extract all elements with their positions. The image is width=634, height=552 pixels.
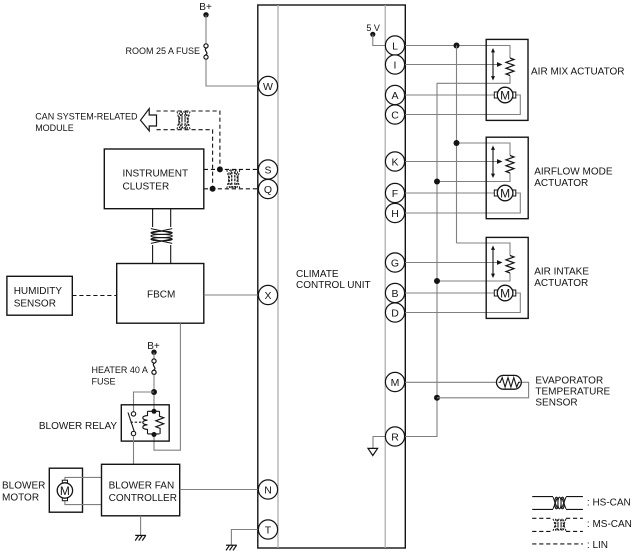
svg-text:FBCM: FBCM	[147, 290, 175, 301]
svg-text:CLUSTER: CLUSTER	[123, 181, 170, 192]
svg-text:B+: B+	[199, 2, 212, 13]
svg-text:BLOWER: BLOWER	[2, 481, 45, 492]
svg-text:: LIN: : LIN	[587, 540, 608, 551]
svg-text:CAN SYSTEM-RELATED: CAN SYSTEM-RELATED	[35, 111, 138, 121]
svg-text:FUSE: FUSE	[92, 376, 116, 386]
svg-text:H: H	[391, 208, 399, 220]
svg-text:TEMPERATURE: TEMPERATURE	[535, 386, 610, 397]
svg-text:: MS-CAN: : MS-CAN	[587, 519, 632, 530]
svg-text:AIRFLOW MODE: AIRFLOW MODE	[534, 167, 613, 178]
svg-text:A: A	[391, 90, 398, 102]
svg-text:MODULE: MODULE	[35, 123, 74, 133]
svg-text:S: S	[264, 164, 271, 176]
svg-text:BLOWER RELAY: BLOWER RELAY	[39, 421, 117, 432]
svg-text:SENSOR: SENSOR	[14, 299, 56, 310]
svg-text:AIR INTAKE: AIR INTAKE	[534, 267, 589, 278]
svg-text:R: R	[391, 431, 399, 443]
svg-text:C: C	[391, 109, 399, 121]
svg-text:5 V: 5 V	[366, 23, 380, 33]
svg-text:W: W	[263, 81, 273, 93]
svg-text:G: G	[391, 257, 399, 269]
svg-text:ACTUATOR: ACTUATOR	[534, 178, 588, 189]
svg-text:M: M	[500, 286, 510, 300]
svg-text:Q: Q	[264, 184, 272, 196]
svg-text:CONTROL UNIT: CONTROL UNIT	[296, 280, 371, 291]
svg-text:: HS-CAN: : HS-CAN	[587, 498, 631, 509]
svg-text:L: L	[392, 40, 398, 52]
svg-text:M: M	[60, 484, 70, 498]
svg-text:ROOM 25 A FUSE: ROOM 25 A FUSE	[126, 46, 201, 56]
svg-text:AIR MIX ACTUATOR: AIR MIX ACTUATOR	[531, 66, 625, 77]
svg-text:MOTOR: MOTOR	[2, 493, 39, 504]
svg-text:SENSOR: SENSOR	[535, 398, 577, 409]
svg-text:HUMIDITY: HUMIDITY	[14, 286, 63, 297]
svg-text:N: N	[264, 484, 272, 496]
svg-text:HEATER 40 A: HEATER 40 A	[92, 365, 148, 375]
svg-text:INSTRUMENT: INSTRUMENT	[123, 169, 189, 180]
svg-text:M: M	[391, 377, 400, 389]
svg-text:I: I	[394, 59, 397, 71]
svg-text:X: X	[264, 290, 271, 302]
svg-text:CLIMATE: CLIMATE	[296, 269, 339, 280]
svg-text:CONTROLLER: CONTROLLER	[109, 493, 177, 504]
svg-text:B: B	[391, 288, 398, 300]
svg-text:K: K	[391, 156, 398, 168]
svg-text:D: D	[391, 307, 399, 319]
svg-text:BLOWER FAN: BLOWER FAN	[109, 481, 175, 492]
svg-text:M: M	[500, 88, 510, 102]
svg-text:M: M	[500, 186, 510, 200]
svg-text:T: T	[265, 524, 272, 536]
svg-text:F: F	[392, 188, 398, 200]
svg-text:ACTUATOR: ACTUATOR	[534, 278, 588, 289]
svg-text:EVAPORATOR: EVAPORATOR	[535, 376, 603, 387]
